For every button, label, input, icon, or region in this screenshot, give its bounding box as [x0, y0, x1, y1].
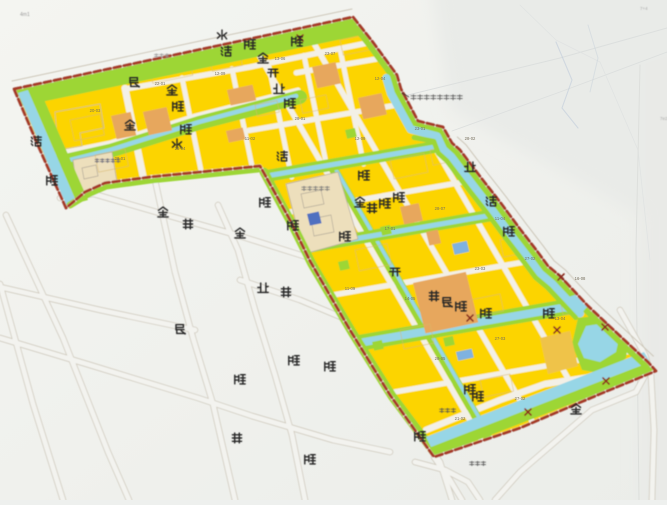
svg-text:28-05: 28-05 [435, 356, 446, 361]
svg-text:4m1: 4m1 [20, 12, 30, 18]
svg-text:7+4: 7+4 [640, 6, 648, 11]
svg-text:27-03: 27-03 [495, 336, 506, 341]
svg-text:11-04: 11-04 [495, 216, 506, 221]
svg-text:21-02: 21-02 [455, 416, 466, 421]
svg-text:17-01: 17-01 [385, 226, 396, 231]
svg-text:23-03: 23-03 [475, 266, 486, 271]
svg-text:28-01: 28-01 [295, 116, 306, 121]
svg-text:23-01: 23-01 [415, 126, 426, 131]
svg-text:12-09: 12-09 [215, 71, 226, 76]
svg-text:22-01: 22-01 [155, 81, 166, 86]
svg-text:28-01: 28-01 [115, 156, 126, 161]
svg-text:28-02: 28-02 [465, 136, 476, 141]
svg-text:28-07: 28-07 [435, 206, 446, 211]
svg-text:11-09: 11-09 [345, 286, 356, 291]
svg-text:13-04: 13-04 [555, 316, 566, 321]
svg-text:27-02: 27-02 [515, 396, 526, 401]
svg-text:12-04: 12-04 [375, 76, 386, 81]
svg-text:16-08: 16-08 [575, 276, 586, 281]
svg-text:20-03: 20-03 [90, 108, 101, 113]
svg-text:12-09: 12-09 [355, 136, 366, 141]
svg-text:7e2: 7e2 [660, 116, 667, 121]
svg-text:13-06: 13-06 [275, 56, 286, 61]
svg-text:11-02: 11-02 [245, 136, 256, 141]
svg-text:14-05: 14-05 [405, 296, 416, 301]
svg-text:27-02: 27-02 [525, 256, 536, 261]
svg-text:23-07: 23-07 [325, 51, 336, 56]
svg-text:26-04: 26-04 [175, 146, 186, 151]
